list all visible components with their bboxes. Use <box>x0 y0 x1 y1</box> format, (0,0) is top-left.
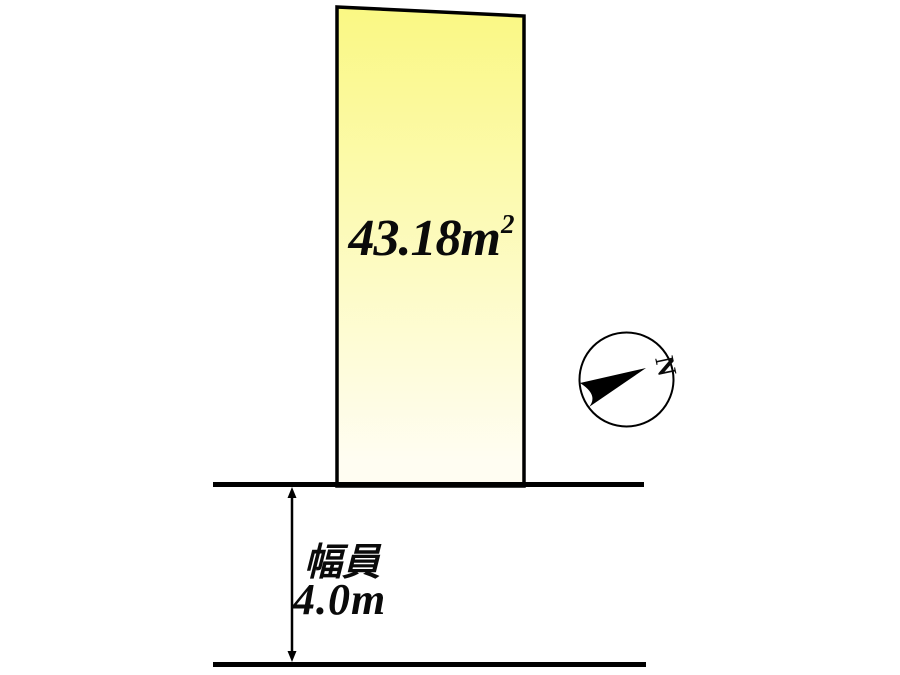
road-edge-top-line <box>213 482 644 487</box>
plot-area-exponent: 2 <box>501 209 514 239</box>
plot-area-label: 43.18m2 <box>337 213 524 265</box>
plot-area-value: 43.18m <box>349 210 500 267</box>
site-plan-drawing <box>0 0 900 675</box>
compass-north-label: N <box>649 349 682 382</box>
arrowhead-up-icon <box>288 487 297 498</box>
road-edge-bottom-line <box>213 662 646 667</box>
site-plan-canvas: 43.18m2 幅員 4.0m N <box>0 0 900 675</box>
arrowhead-down-icon <box>288 651 297 662</box>
road-width-value: 4.0m <box>293 578 386 622</box>
